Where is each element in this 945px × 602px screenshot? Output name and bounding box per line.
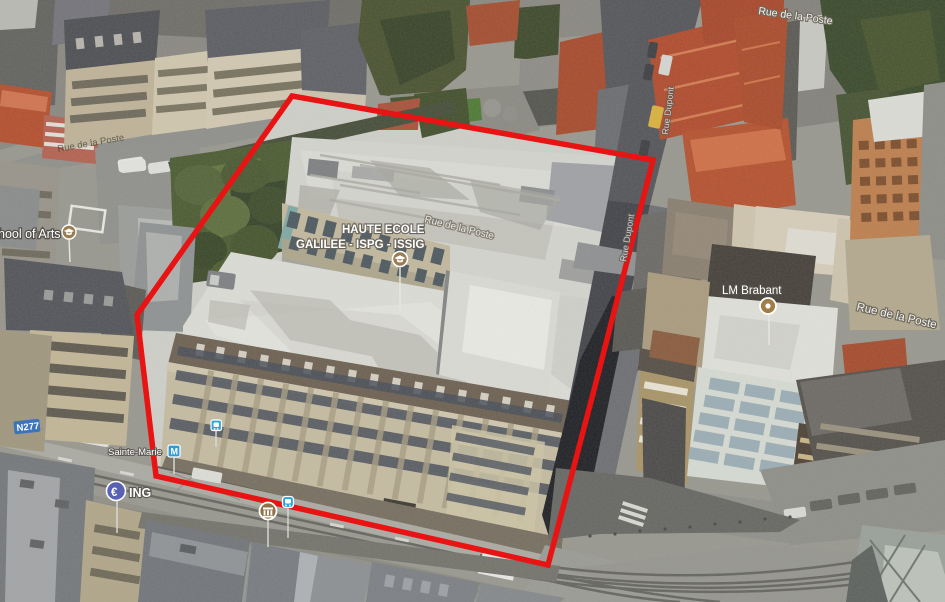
svg-text:ING: ING	[129, 486, 151, 500]
svg-text:€: €	[111, 487, 118, 499]
svg-text:LM Brabant: LM Brabant	[722, 285, 782, 297]
svg-text:GALILEE - ISPG - ISSIG: GALILEE - ISPG - ISSIG	[296, 239, 424, 251]
svg-text:M: M	[171, 447, 179, 457]
svg-text:hool of Arts: hool of Arts	[0, 227, 61, 241]
svg-text:HAUTE ECOLE: HAUTE ECOLE	[342, 224, 425, 236]
svg-text:Sainte-Marie: Sainte-Marie	[108, 447, 162, 458]
